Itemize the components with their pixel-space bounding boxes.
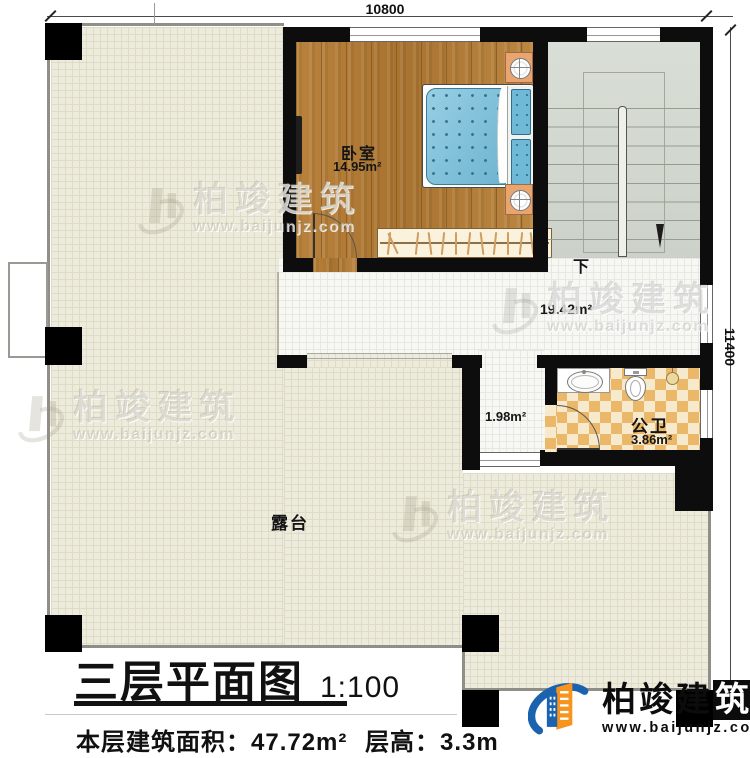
wall <box>283 42 296 272</box>
terrace-door-sill <box>307 353 452 359</box>
terrace-floor <box>51 27 284 646</box>
column <box>45 23 82 60</box>
company-logo: 柏竣建筑 www.baijunjz.com <box>528 676 750 742</box>
terrace-floor <box>284 358 463 646</box>
sink-basin <box>567 371 603 393</box>
wall <box>283 258 313 272</box>
bathroom-area: 3.86m² <box>631 432 672 447</box>
stair-center-rail <box>618 106 627 257</box>
bed-pillow <box>511 89 531 135</box>
window <box>700 390 713 438</box>
nightstand <box>505 184 533 215</box>
plan-title-text: 三层平面图 <box>74 658 304 707</box>
lamp-icon <box>510 190 531 211</box>
hallway-floor <box>278 258 700 358</box>
stairs-down-label: 下 <box>573 253 589 277</box>
nightstand <box>505 52 533 83</box>
sink <box>557 368 610 393</box>
divider-line <box>45 714 457 715</box>
bed <box>422 84 534 188</box>
faucet-icon <box>582 370 586 374</box>
toilet-bowl <box>625 376 646 401</box>
toilet <box>621 368 650 402</box>
wardrobe <box>377 228 552 258</box>
column <box>462 615 499 652</box>
wall <box>462 452 480 470</box>
bedroom-doorway <box>313 258 357 272</box>
wall <box>660 27 713 42</box>
plan-area-text: 本层建筑面积：47.72m² <box>76 729 347 756</box>
plan-scale: 1:100 <box>320 671 400 704</box>
title-underline <box>74 701 347 706</box>
bathroom-doorway <box>545 405 557 452</box>
wall <box>283 27 350 42</box>
hanger-icon <box>455 232 457 255</box>
hallway-west-edge <box>277 272 279 355</box>
hanger-icon <box>507 232 509 255</box>
hanger-icon <box>519 232 523 255</box>
hanger-icon <box>493 232 497 255</box>
dimension-right: 11400 <box>722 309 738 385</box>
wall <box>700 42 713 285</box>
window <box>700 285 713 343</box>
hanger-icon <box>428 232 433 255</box>
column <box>45 327 82 365</box>
planter-box <box>8 262 48 358</box>
wall <box>540 450 700 466</box>
lamp-icon <box>510 58 531 79</box>
wall-corner-block <box>675 466 713 511</box>
terrace-floor <box>463 473 708 688</box>
terrace-edge-north <box>47 23 284 26</box>
wall <box>357 258 548 272</box>
toilet-tank <box>624 368 647 376</box>
shower-head-icon <box>666 372 679 385</box>
window <box>350 27 480 42</box>
company-name-prefix: 柏竣建 <box>602 681 713 719</box>
window <box>480 452 540 467</box>
wall <box>480 27 587 42</box>
wall <box>533 42 548 258</box>
dimension-top: 10800 <box>355 1 415 17</box>
hanger-icon <box>441 232 445 255</box>
hanger-icon <box>467 232 471 255</box>
hanger-icon <box>480 232 485 255</box>
floor-plan-canvas: 10800 11400 卧室 14.95m² 19.42m² 下 1.98m² … <box>0 0 750 758</box>
corridor-area: 1.98m² <box>485 409 526 424</box>
terrace-edge-east <box>708 508 711 691</box>
company-logo-icon <box>528 676 594 742</box>
wall <box>537 355 700 368</box>
company-name-boxed: 筑 <box>713 680 750 720</box>
plan-info: 本层建筑面积：47.72m² 层高：3.3m <box>76 722 499 757</box>
extension-line <box>154 3 155 25</box>
hanger-icon <box>415 232 419 255</box>
hall-area: 19.42m² <box>540 301 592 317</box>
wall <box>700 343 713 390</box>
plan-floor-height-text: 层高：3.3m <box>365 729 499 756</box>
company-url: www.baijunjz.com <box>602 720 750 736</box>
wall <box>545 368 557 405</box>
terrace-label: 露台 <box>271 509 309 534</box>
company-name: 柏竣建筑 <box>602 683 750 717</box>
bedroom-area: 14.95m² <box>333 159 381 174</box>
wall <box>277 355 307 368</box>
stair-direction-arrow <box>656 224 664 248</box>
corridor-floor <box>478 350 545 455</box>
bed-pillow <box>511 139 531 185</box>
wall <box>462 355 480 455</box>
bed-mattress <box>426 88 506 185</box>
window <box>587 27 660 42</box>
